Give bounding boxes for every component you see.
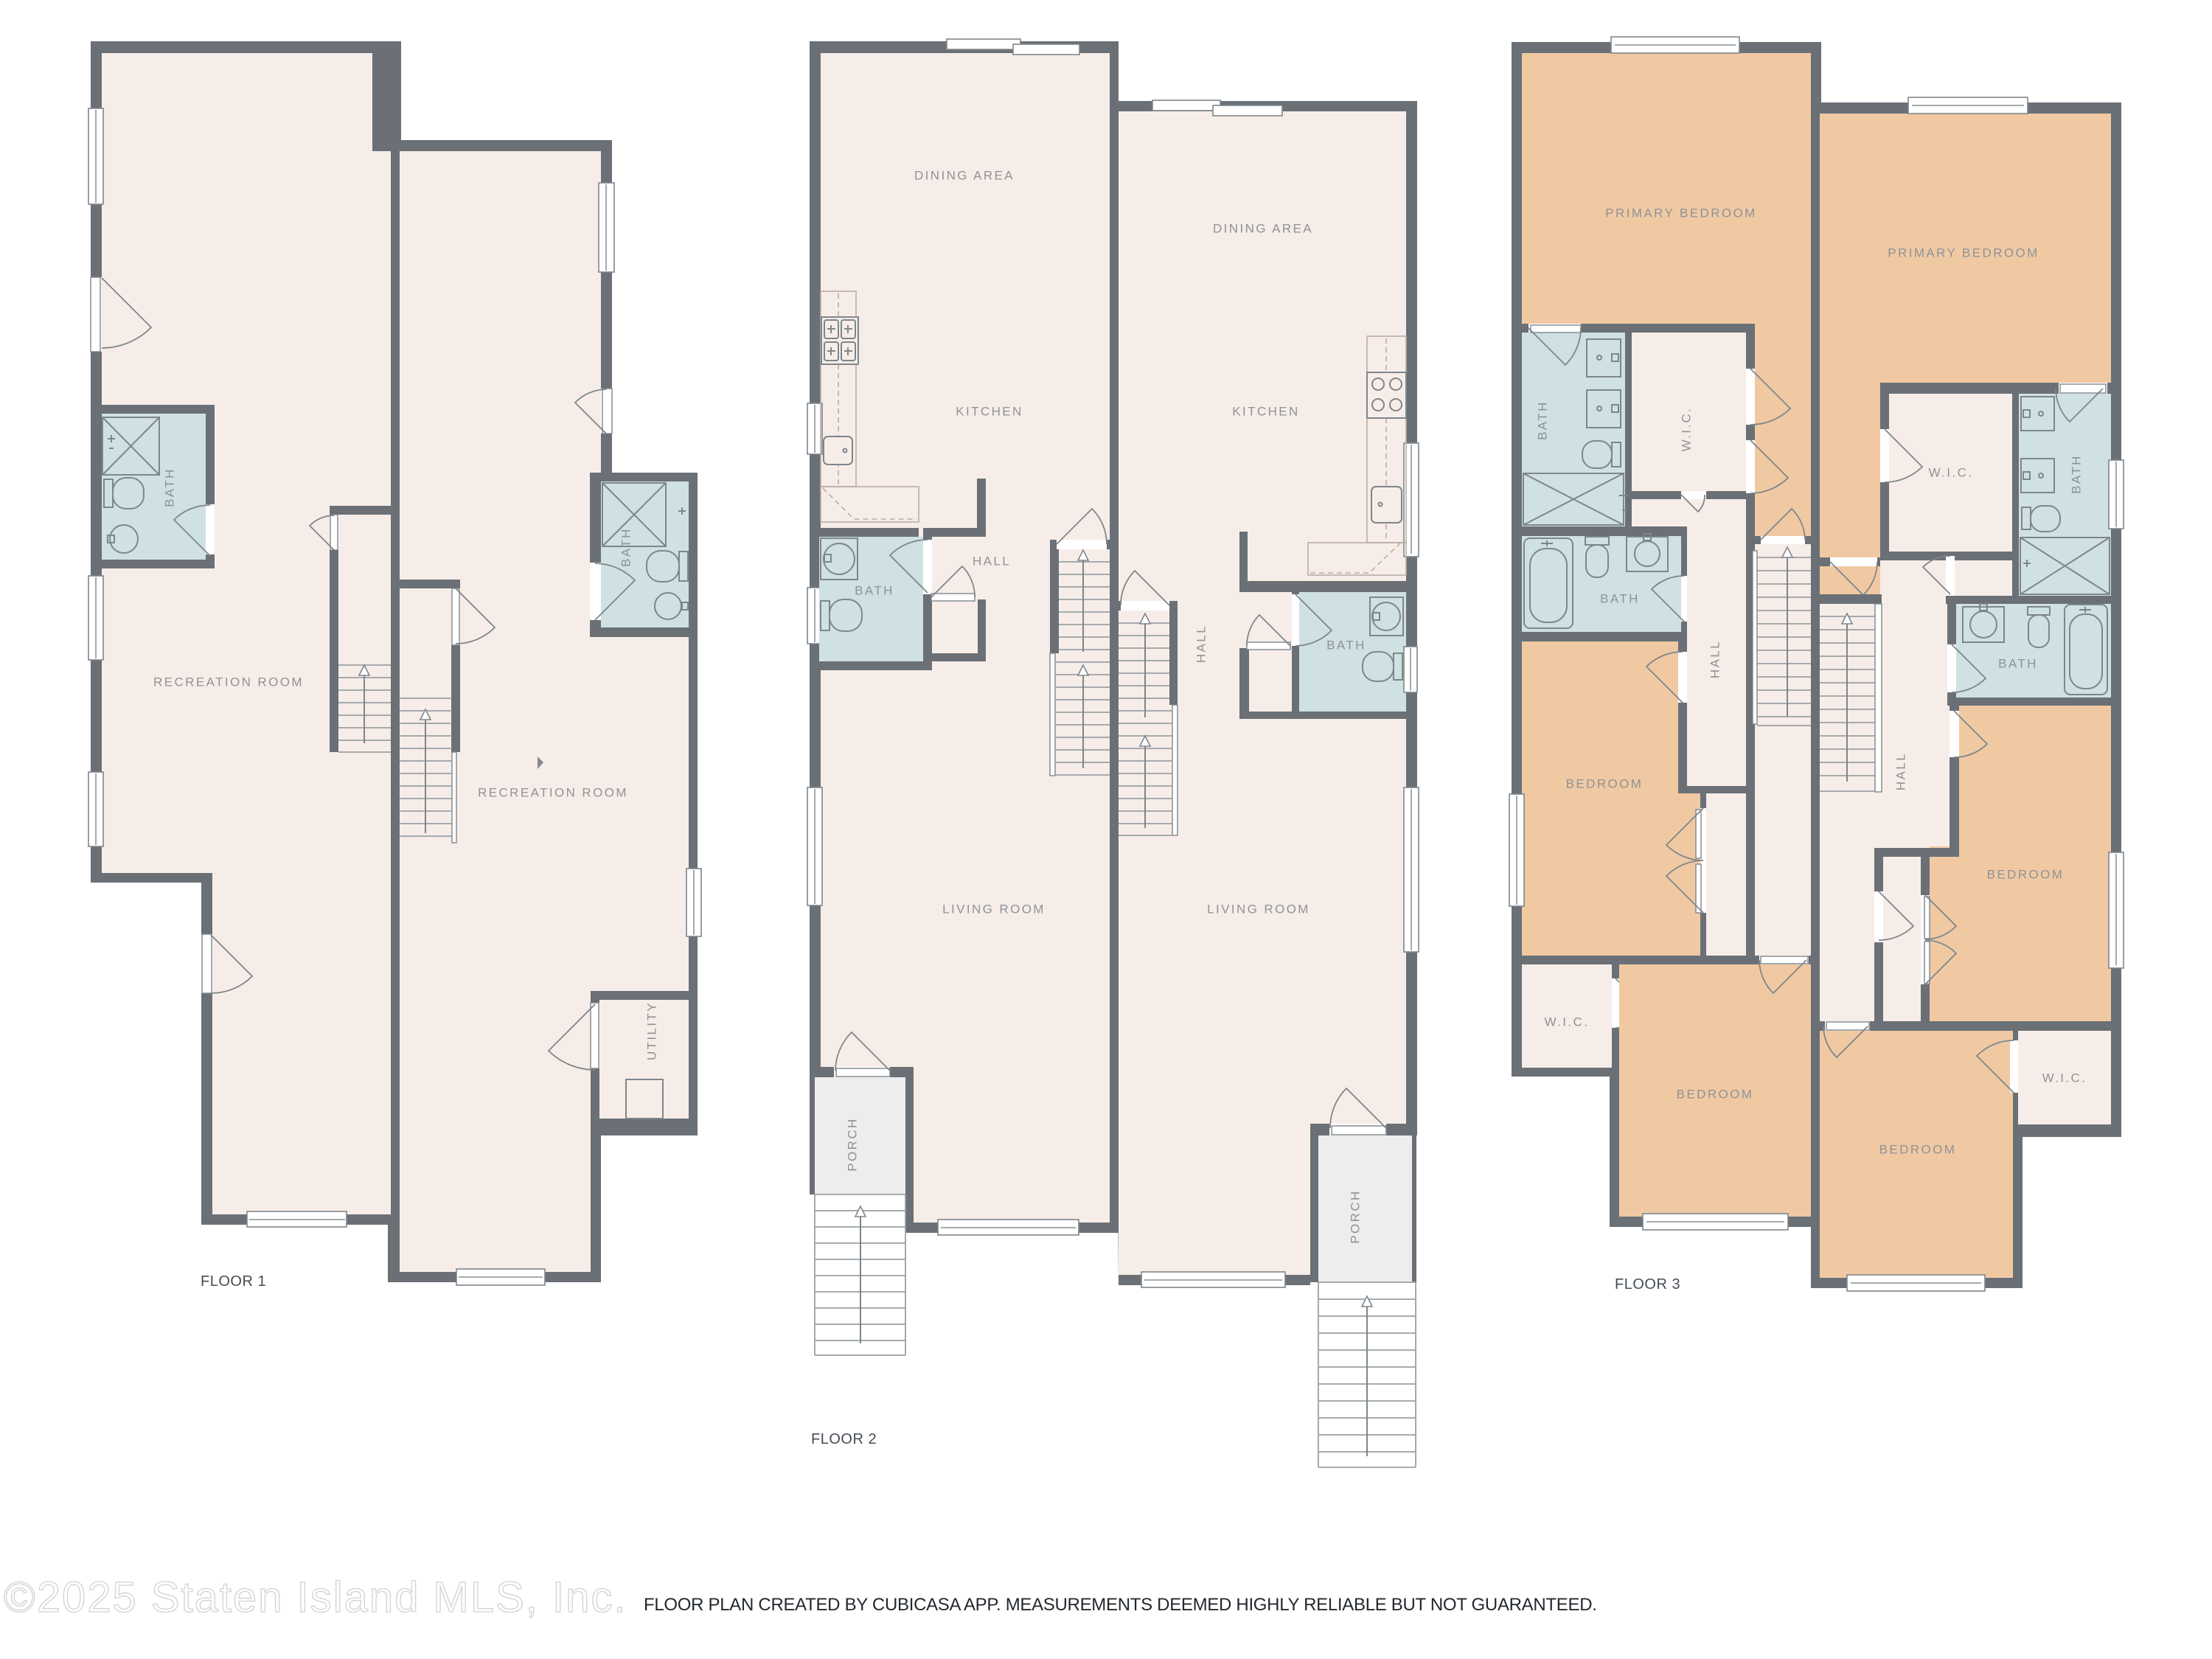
svg-text:PRIMARY BEDROOM: PRIMARY BEDROOM <box>1605 206 1756 220</box>
svg-text:W.I.C.: W.I.C. <box>1929 466 1974 480</box>
svg-text:BATH: BATH <box>1998 657 2038 671</box>
svg-text:BEDROOM: BEDROOM <box>1987 868 2065 882</box>
svg-text:W.I.C.: W.I.C. <box>2042 1071 2087 1085</box>
svg-text:HALL: HALL <box>1708 640 1722 678</box>
svg-text:W.I.C.: W.I.C. <box>1680 407 1694 452</box>
svg-text:KITCHEN: KITCHEN <box>956 405 1023 419</box>
svg-text:FLOOR 2: FLOOR 2 <box>811 1431 877 1447</box>
svg-text:KITCHEN: KITCHEN <box>1232 405 1299 419</box>
svg-text:BEDROOM: BEDROOM <box>1879 1143 1957 1157</box>
svg-text:BATH: BATH <box>619 527 633 567</box>
svg-text:LIVING ROOM: LIVING ROOM <box>1207 902 1310 917</box>
svg-text:FLOOR 1: FLOOR 1 <box>201 1273 266 1290</box>
svg-text:BATH: BATH <box>163 467 177 507</box>
svg-text:BATH: BATH <box>2070 454 2084 494</box>
svg-text:BATH: BATH <box>1326 639 1366 653</box>
svg-text:PRIMARY BEDROOM: PRIMARY BEDROOM <box>1888 246 2039 260</box>
svg-text:RECREATION ROOM: RECREATION ROOM <box>478 786 628 800</box>
svg-text:W.I.C.: W.I.C. <box>1545 1015 1590 1029</box>
svg-text:BATH: BATH <box>855 584 894 598</box>
svg-text:FLOOR 3: FLOOR 3 <box>1615 1276 1680 1293</box>
svg-text:BEDROOM: BEDROOM <box>1566 777 1644 791</box>
svg-text:BATH: BATH <box>1536 400 1550 440</box>
svg-text:DINING AREA: DINING AREA <box>1213 222 1313 236</box>
svg-text:©2025 Staten Island MLS, Inc.: ©2025 Staten Island MLS, Inc. <box>4 1573 627 1621</box>
svg-text:RECREATION ROOM: RECREATION ROOM <box>153 675 304 689</box>
svg-text:LIVING ROOM: LIVING ROOM <box>942 902 1046 917</box>
svg-text:DINING AREA: DINING AREA <box>914 169 1015 183</box>
svg-text:BATH: BATH <box>1600 592 1640 606</box>
svg-text:BEDROOM: BEDROOM <box>1677 1088 1754 1102</box>
svg-text:HALL: HALL <box>973 554 1011 568</box>
svg-text:PORCH: PORCH <box>846 1117 860 1171</box>
svg-text:PORCH: PORCH <box>1349 1189 1363 1243</box>
svg-text:HALL: HALL <box>1894 752 1908 790</box>
svg-text:FLOOR PLAN CREATED BY CUBICASA: FLOOR PLAN CREATED BY CUBICASA APP. MEAS… <box>644 1595 1597 1615</box>
svg-text:UTILITY: UTILITY <box>645 1001 659 1060</box>
svg-text:HALL: HALL <box>1194 625 1208 663</box>
